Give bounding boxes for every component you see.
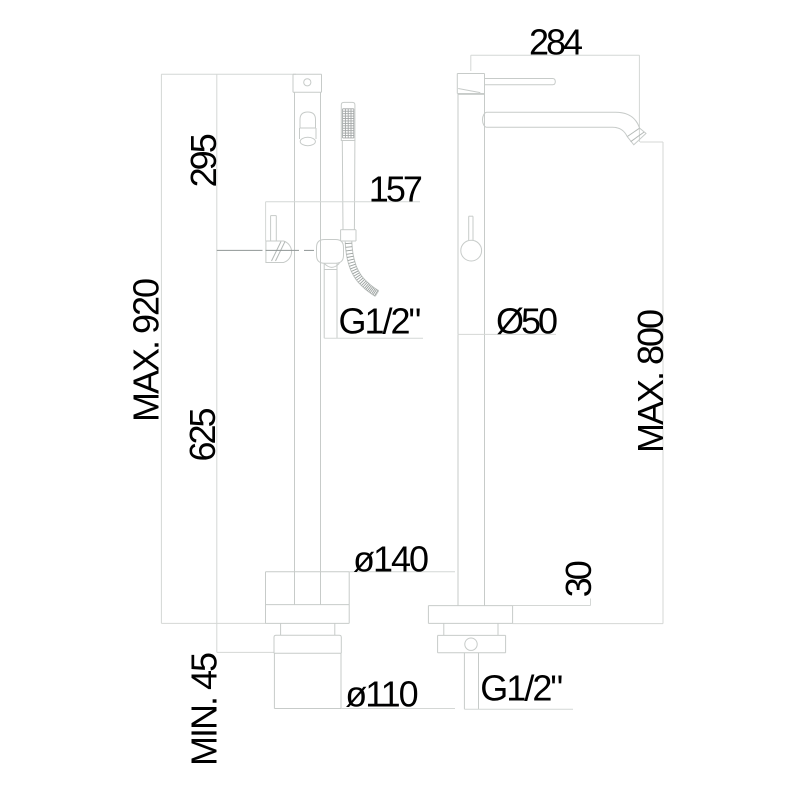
- svg-text:30: 30: [558, 561, 599, 597]
- svg-text:G1/2": G1/2": [480, 668, 562, 709]
- svg-text:G1/2": G1/2": [339, 301, 421, 342]
- svg-text:Ø50: Ø50: [496, 301, 557, 342]
- svg-text:MAX. 920: MAX. 920: [126, 279, 167, 422]
- svg-text:MIN. 45: MIN. 45: [184, 653, 225, 766]
- svg-text:MAX. 800: MAX. 800: [630, 310, 671, 453]
- svg-text:157: 157: [369, 169, 422, 210]
- svg-text:295: 295: [183, 134, 224, 187]
- svg-text:ø140: ø140: [353, 538, 428, 579]
- svg-text:ø110: ø110: [345, 674, 417, 715]
- svg-text:284: 284: [529, 22, 582, 63]
- svg-text:625: 625: [182, 408, 223, 461]
